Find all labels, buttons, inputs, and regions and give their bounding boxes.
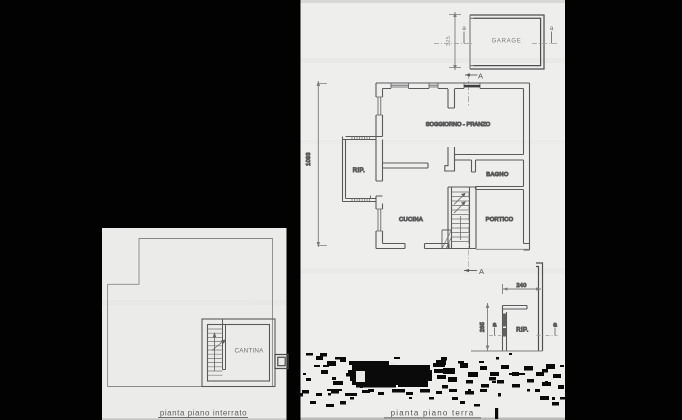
svg-text:BAGNO: BAGNO bbox=[486, 172, 509, 178]
svg-text:A: A bbox=[478, 72, 483, 81]
svg-text:pianta piano interrato: pianta piano interrato bbox=[160, 409, 247, 418]
svg-text:A: A bbox=[479, 267, 484, 276]
svg-text:240: 240 bbox=[516, 283, 526, 289]
svg-text:SOGGIORNO - PRANZO: SOGGIORNO - PRANZO bbox=[426, 122, 491, 128]
svg-text:CANTINA: CANTINA bbox=[234, 348, 264, 355]
svg-text:RIP.: RIP. bbox=[353, 168, 366, 174]
svg-text:PORTICO: PORTICO bbox=[486, 217, 514, 223]
svg-text:325: 325 bbox=[446, 36, 452, 46]
svg-text:CUCINA: CUCINA bbox=[399, 217, 423, 223]
svg-text:a: a bbox=[550, 25, 554, 32]
svg-text:pianta piano terra: pianta piano terra bbox=[391, 409, 475, 418]
svg-text:1093: 1093 bbox=[306, 152, 312, 166]
svg-text:a: a bbox=[462, 25, 466, 32]
svg-text:265: 265 bbox=[480, 322, 486, 332]
svg-text:RIP.: RIP. bbox=[516, 328, 529, 334]
svg-text:a: a bbox=[493, 322, 497, 329]
svg-text:GARAGE: GARAGE bbox=[492, 38, 522, 44]
svg-text:a: a bbox=[553, 322, 557, 329]
